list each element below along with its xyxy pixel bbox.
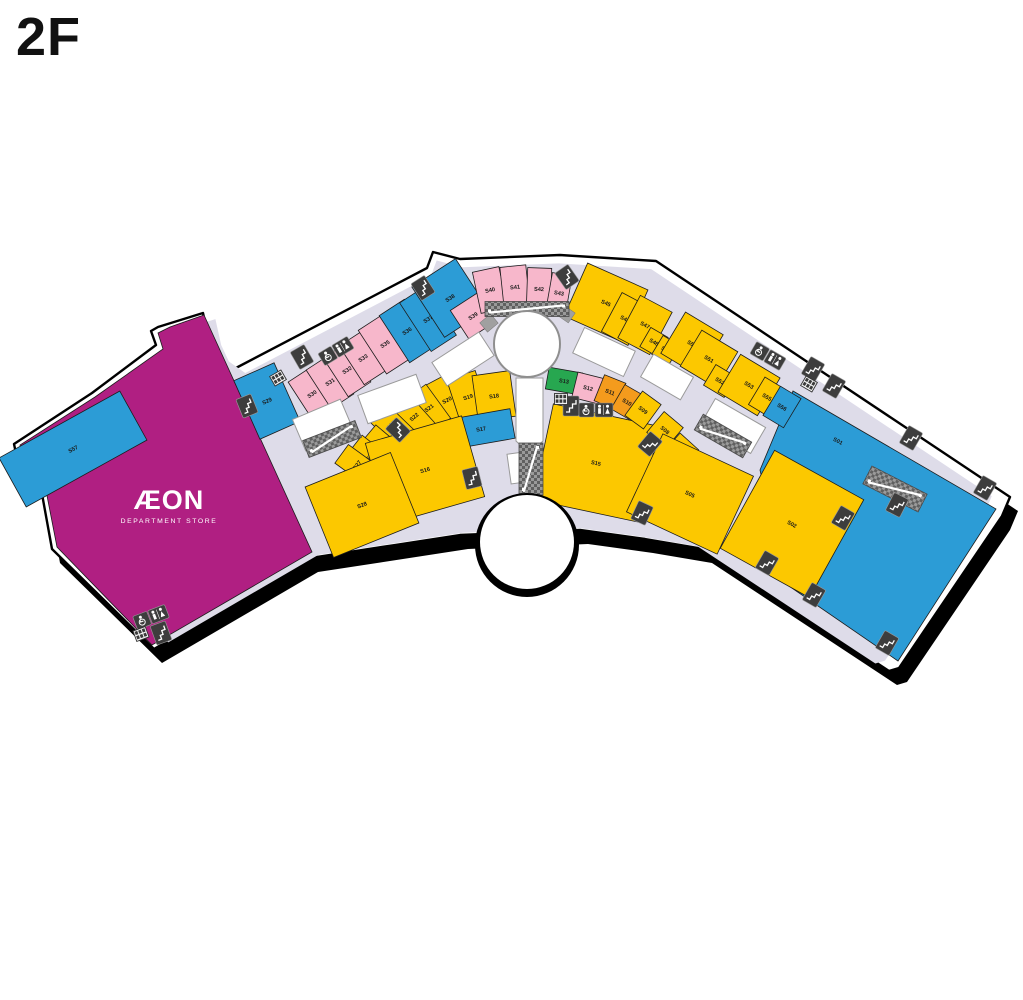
store-label: S41 [510, 284, 521, 291]
mall-floor-map: S01S57S29S30S31S32S33S35S36S37S38S39S40S… [0, 0, 1023, 1000]
aeon-logo: ÆONDEPARTMENT STORE [121, 485, 218, 525]
restroom-icon [579, 403, 613, 417]
entrance-notch [480, 495, 574, 589]
store-label: S42 [534, 287, 544, 293]
locker-icon [555, 394, 568, 405]
vacant-unit [516, 378, 543, 453]
aeon-sub-text: DEPARTMENT STORE [121, 518, 218, 525]
aeon-brand-text: ÆON [134, 485, 205, 515]
escalator-icon [519, 443, 543, 495]
atrium-circle [494, 311, 560, 377]
